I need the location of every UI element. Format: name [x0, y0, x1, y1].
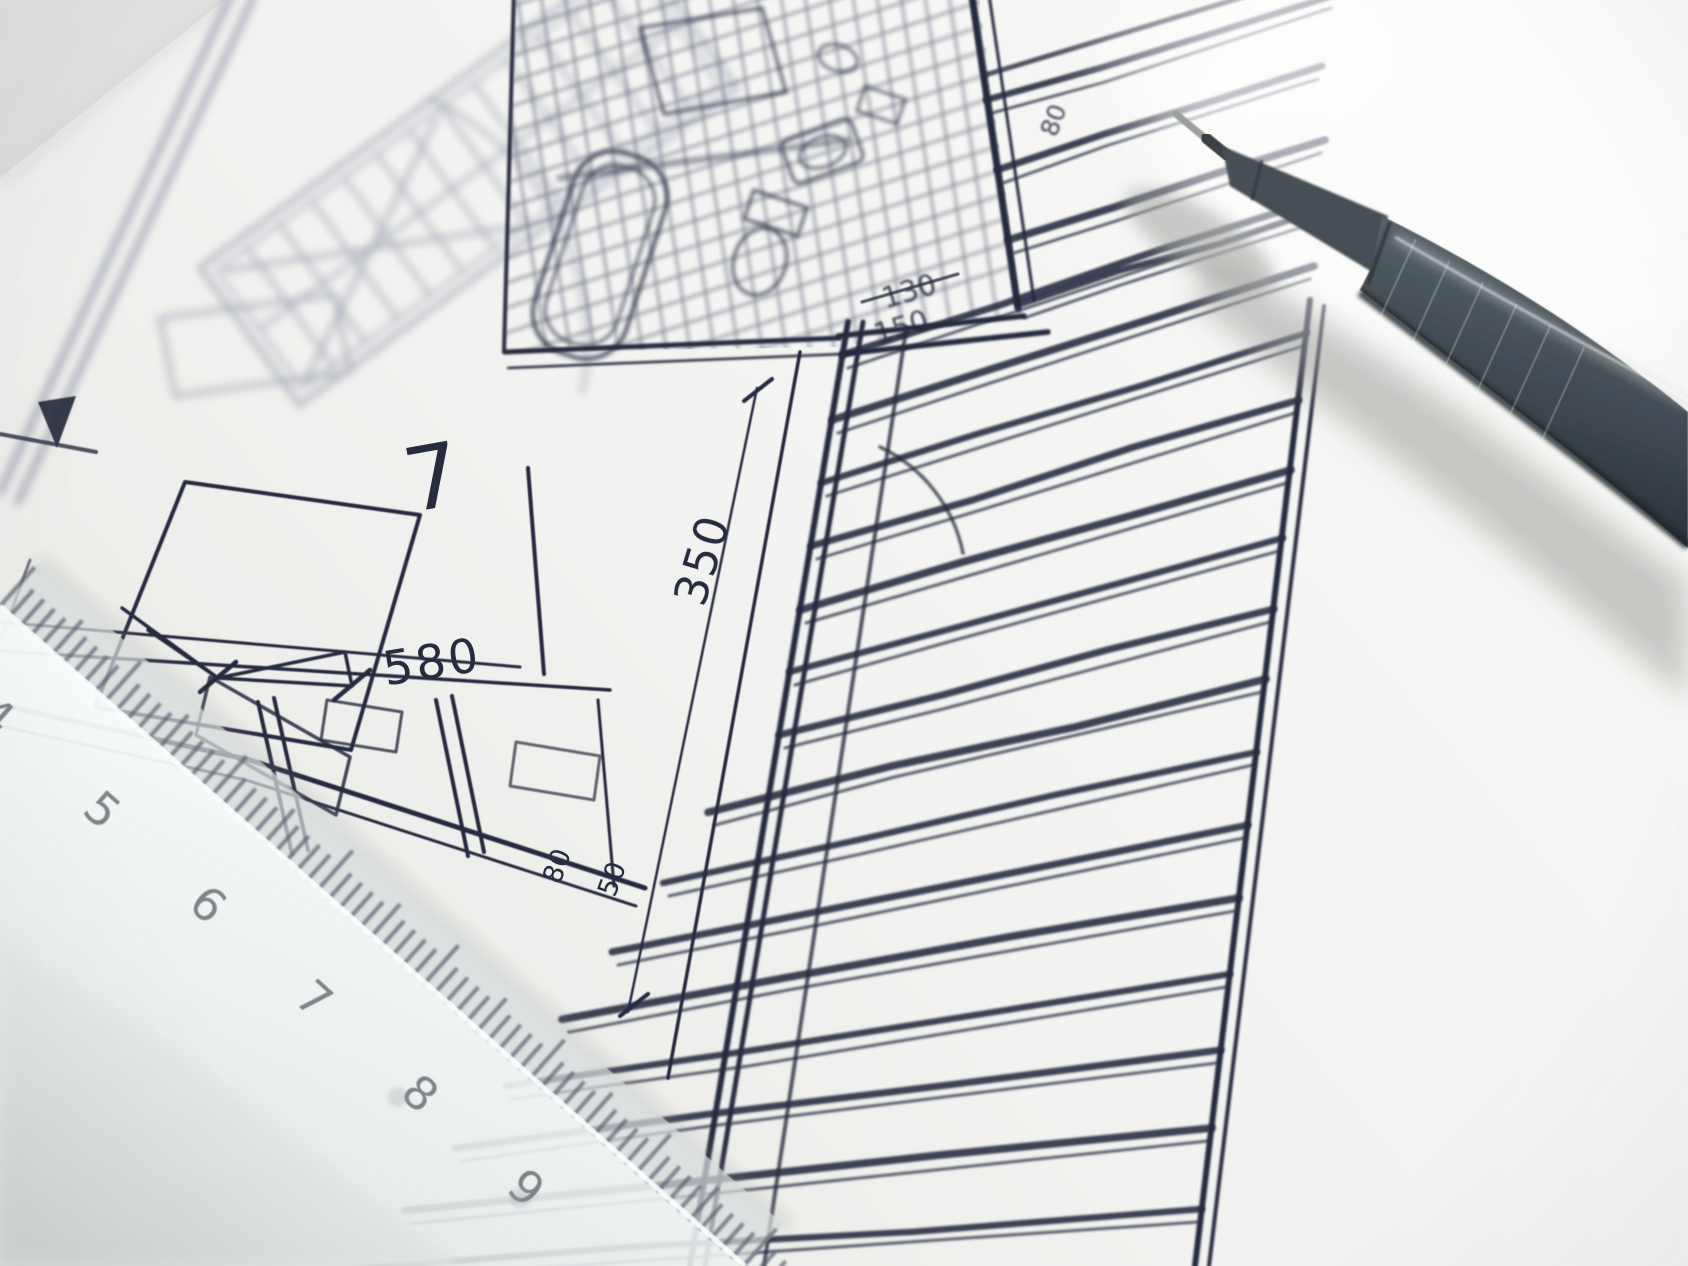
vignette [0, 0, 1688, 1266]
photo-scene: 7 580 350 130 150 80 80 50 456789 [0, 0, 1688, 1266]
scene-canvas: 7 580 350 130 150 80 80 50 456789 [0, 0, 1688, 1266]
